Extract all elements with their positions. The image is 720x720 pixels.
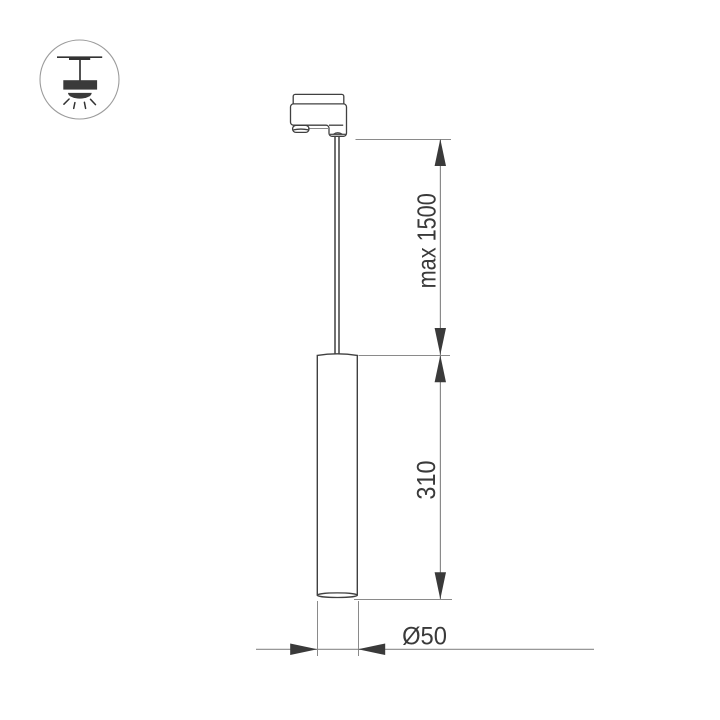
svg-text:max 1500: max 1500 (414, 193, 442, 288)
svg-text:310: 310 (413, 460, 441, 499)
svg-text:Ø50: Ø50 (402, 623, 447, 651)
